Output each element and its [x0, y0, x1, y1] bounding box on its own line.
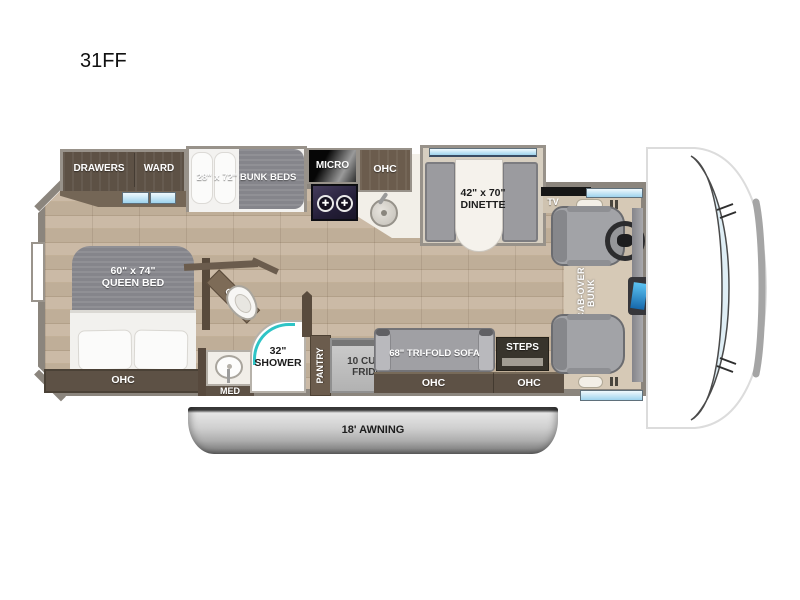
- cab-front-hood: [645, 140, 780, 437]
- kitchen-ohc-cabinet: OHC: [358, 148, 412, 192]
- hood-body: [647, 148, 766, 428]
- steering-wheel-hub-icon: [617, 234, 633, 247]
- bedroom-ohc-label: OHC: [111, 375, 134, 387]
- med-faucet-icon: [227, 369, 230, 383]
- wardrobe-divider: [134, 153, 135, 187]
- passenger-seat-back: [553, 318, 567, 370]
- passenger-seat-arm: [567, 368, 611, 374]
- passenger-door-hinge-icon: [615, 377, 618, 386]
- bedroom-ohc-cabinet: OHC: [44, 369, 202, 393]
- steps-label: STEPS: [496, 342, 549, 353]
- pantry-label: PANTRY: [310, 335, 331, 396]
- dinette-label: 42" x 70" DINETTE: [420, 188, 546, 212]
- entry-ohc-label: OHC: [517, 378, 540, 390]
- passenger-door-handle: [578, 376, 603, 388]
- slide-rail-strip: [386, 398, 471, 403]
- bedroom-window: [31, 242, 45, 302]
- kitchen-ohc-label: OHC: [373, 164, 396, 176]
- med-cabinet: MED: [206, 386, 254, 396]
- passenger-door-hinge-icon: [610, 377, 613, 386]
- sofa-armcap-right: [479, 329, 493, 336]
- sofa-ohc-cabinet: OHC: [374, 372, 493, 393]
- microwave: MICRO: [307, 148, 358, 184]
- kitchen-sink-drain-icon: [381, 210, 387, 216]
- med-label: MED: [220, 386, 240, 396]
- awning-label: 18' AWNING: [188, 424, 558, 436]
- fridge-top-trim: [332, 340, 380, 346]
- queen-bed-label: 60" x 74" QUEEN BED: [72, 266, 194, 290]
- dinette-window: [429, 148, 537, 157]
- tv: [541, 187, 591, 196]
- drawers-label: DRAWERS: [66, 163, 132, 174]
- model-title: 31FF: [80, 50, 127, 73]
- entry-ohc-cabinet: OHC: [493, 372, 564, 393]
- passenger-door-window: [580, 390, 643, 401]
- wardrobe-window-left: [122, 192, 149, 204]
- pantry-wall: [302, 291, 312, 337]
- driver-seat-arm: [567, 206, 611, 212]
- queen-pillow-left: [78, 330, 133, 371]
- sofa-ohc-label: OHC: [422, 378, 445, 390]
- shower-label: 32" SHOWER: [250, 346, 306, 370]
- sofa-label: 68" TRI-FOLD SOFA: [374, 349, 495, 360]
- ward-label: WARD: [136, 163, 182, 174]
- driver-seat-arm: [567, 260, 611, 266]
- micro-label: MICRO: [316, 160, 349, 171]
- sofa-armcap-left: [376, 329, 390, 336]
- driver-seat-back: [553, 210, 567, 262]
- queen-pillow-right: [134, 330, 189, 371]
- burner-left-icon: ✚: [317, 195, 334, 212]
- entry-steps-tread: [502, 358, 543, 366]
- bunk-beds-label: 28" x 72" BUNK BEDS: [184, 173, 309, 184]
- floorplan-canvas: 31FF 60" x 74" QUEEN BED OHC OHC ✚ ✚ MED: [0, 0, 800, 600]
- burner-right-icon: ✚: [336, 195, 353, 212]
- slide-rail-strip: [494, 399, 556, 404]
- driver-door-window: [586, 188, 643, 198]
- slide-rail-strip: [84, 398, 168, 403]
- med-wall: [198, 348, 206, 396]
- passenger-seat-arm: [567, 314, 611, 320]
- wardrobe-window-right: [150, 192, 176, 204]
